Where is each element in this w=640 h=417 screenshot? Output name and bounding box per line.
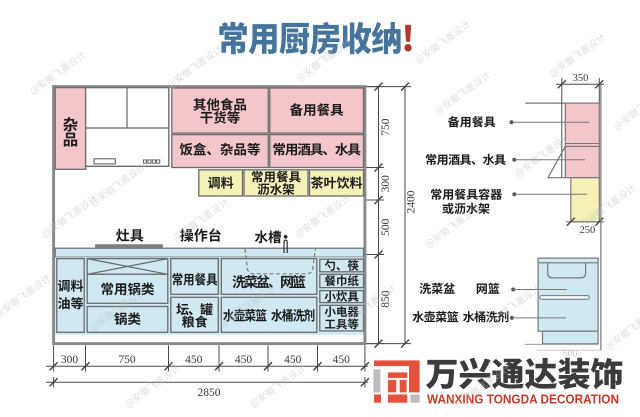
svg-text:450: 450 <box>235 354 253 366</box>
svg-text:250: 250 <box>580 225 596 236</box>
svg-text:WANXING TONGDA DECORATION: WANXING TONGDA DECORATION <box>427 393 619 407</box>
svg-text:750: 750 <box>380 118 392 136</box>
svg-text:350: 350 <box>573 73 589 84</box>
svg-text:300: 300 <box>61 354 79 366</box>
svg-text:450: 450 <box>333 354 351 366</box>
svg-text:2850: 2850 <box>198 387 221 399</box>
svg-text:300: 300 <box>380 175 392 193</box>
svg-text:450: 450 <box>185 354 203 366</box>
svg-text:500: 500 <box>380 218 392 236</box>
svg-text:750: 750 <box>118 354 136 366</box>
svg-text:450: 450 <box>284 354 302 366</box>
svg-text:600: 600 <box>563 349 578 360</box>
svg-text:2400: 2400 <box>406 190 418 213</box>
